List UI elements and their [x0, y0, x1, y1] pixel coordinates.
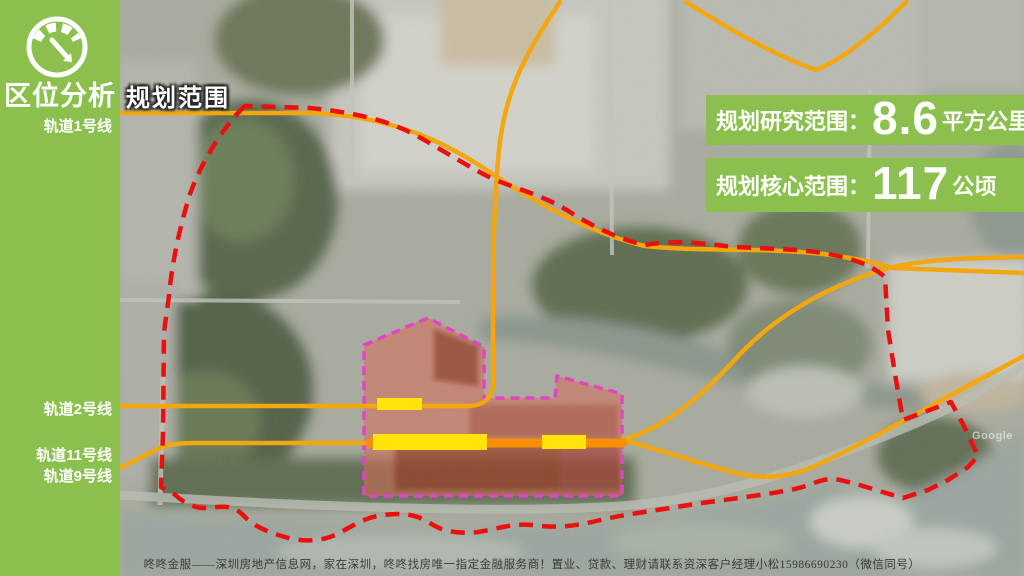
station-bar-line2 [377, 398, 422, 410]
stat-label: 规划研究范围： [716, 104, 870, 136]
station-bar-east [542, 435, 586, 449]
stat-box-core-scope: 规划核心范围：117公顷 [706, 158, 1024, 212]
stat-label: 规划核心范围： [716, 169, 870, 201]
sidebar: 区位分析 轨道1号线 轨道2号线 轨道11号线 轨道9号线 [0, 0, 120, 576]
gauge-icon [22, 12, 92, 82]
sidebar-label-rail-2: 轨道2号线 [0, 398, 120, 419]
map-scope-label: 规划范围 [126, 78, 230, 113]
stat-unit: 公顷 [952, 169, 996, 201]
sidebar-label-rail-11: 轨道11号线 [0, 444, 120, 465]
stat-unit: 平方公里 [942, 104, 1024, 136]
slide: Google 规划范围 规划研究范围：8.6平方公里 规划核心范围：117公顷 … [0, 0, 1024, 576]
footer-watermark: 咚咚金服——深圳房地产信息网，家在深圳，咚咚找房唯一指定金融服务商！置业、贷款、… [40, 556, 1024, 572]
sidebar-label-rail-1: 轨道1号线 [0, 115, 120, 136]
stat-value: 117 [872, 160, 949, 206]
sidebar-title: 区位分析 [0, 74, 120, 113]
stat-box-study-scope: 规划研究范围：8.6平方公里 [706, 95, 1024, 145]
stat-value: 8.6 [872, 95, 939, 141]
station-bar-main [373, 434, 487, 450]
imagery-watermark: Google [972, 430, 1013, 442]
sidebar-label-rail-9: 轨道9号线 [0, 465, 120, 486]
